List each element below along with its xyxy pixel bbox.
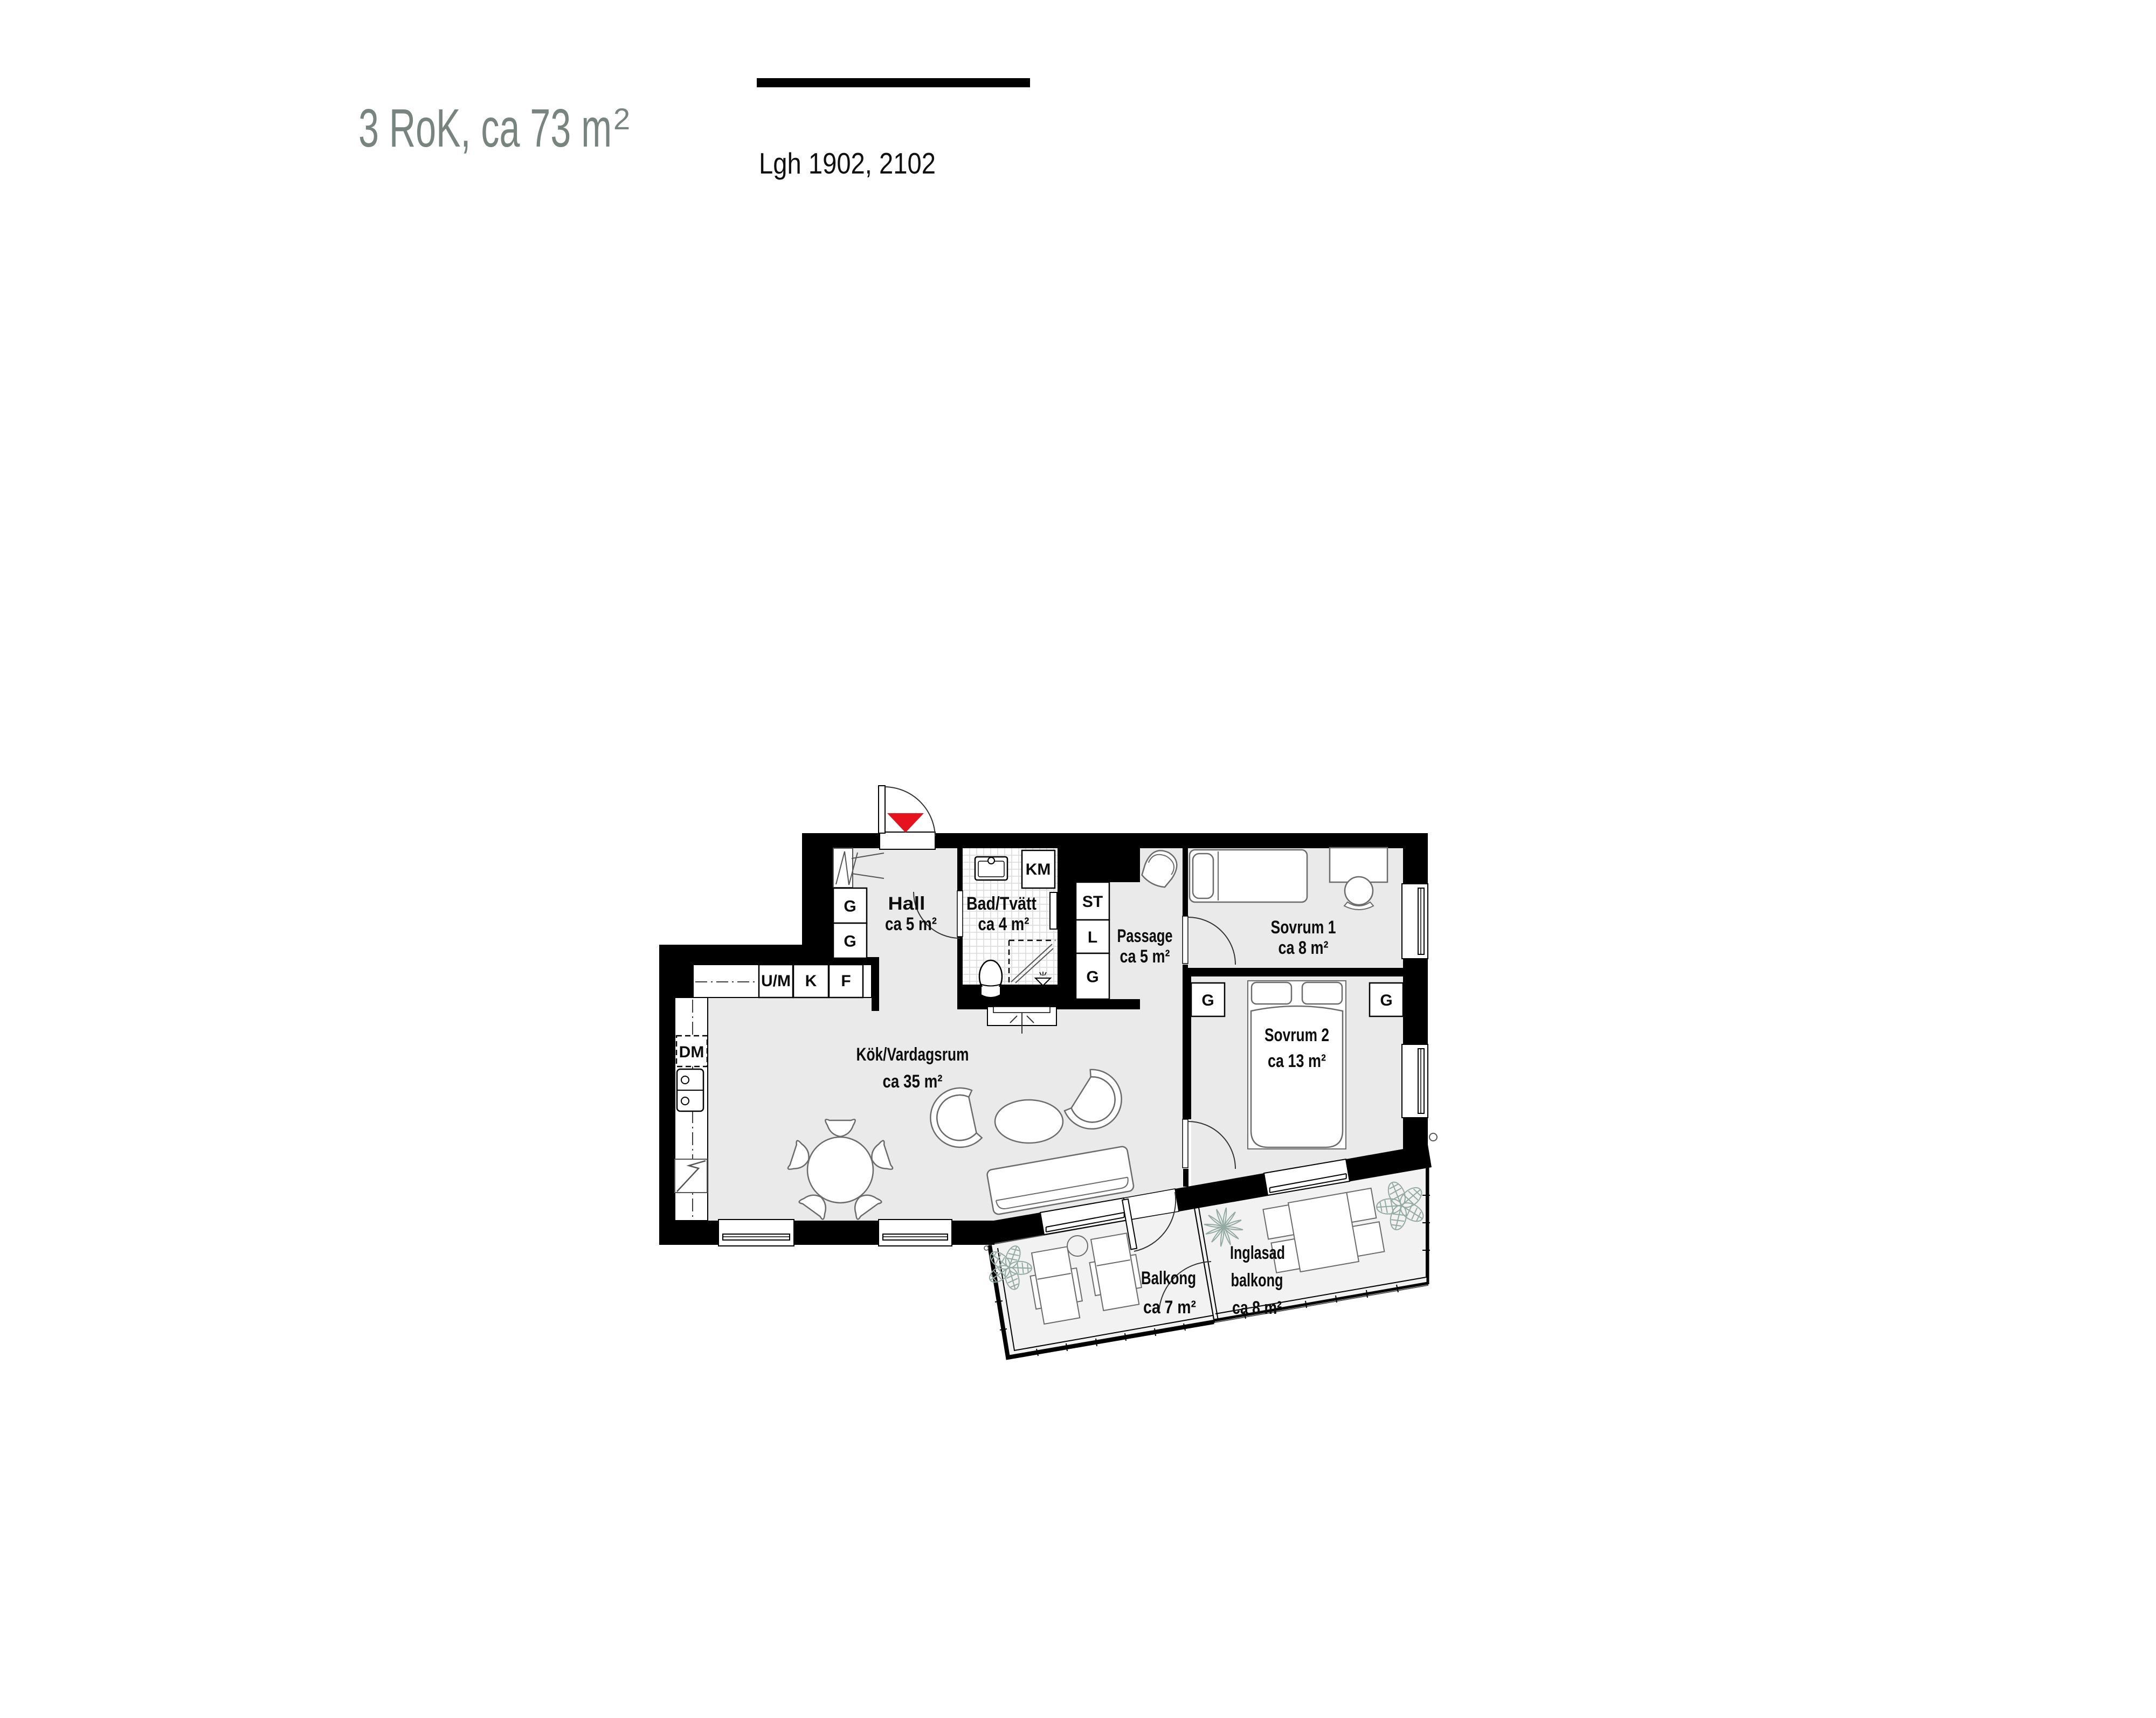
svg-text:ca 7 m²: ca 7 m² [1143, 1297, 1196, 1318]
svg-text:ca 8 m²: ca 8 m² [1279, 938, 1329, 958]
svg-text:G: G [844, 932, 856, 950]
svg-text:K: K [805, 972, 817, 990]
svg-text:Lgh 1902, 2102: Lgh 1902, 2102 [759, 147, 936, 180]
svg-text:Balkong: Balkong [1141, 1268, 1196, 1288]
svg-text:Sovrum 2: Sovrum 2 [1264, 1025, 1329, 1045]
svg-text:U/M: U/M [761, 972, 791, 990]
svg-text:Sovrum 1: Sovrum 1 [1271, 917, 1336, 938]
svg-text:ST: ST [1082, 893, 1103, 911]
svg-text:Hall: Hall [888, 893, 925, 914]
svg-text:Bad/Tvätt: Bad/Tvätt [966, 893, 1036, 914]
svg-text:ca 5 m²: ca 5 m² [1120, 946, 1170, 967]
svg-text:F: F [841, 972, 851, 990]
svg-text:Passage: Passage [1117, 926, 1173, 946]
svg-text:G: G [1086, 968, 1098, 986]
svg-text:G: G [1201, 992, 1214, 1009]
svg-text:ca 4 m²: ca 4 m² [978, 914, 1029, 934]
svg-text:Kök/Vardagsrum: Kök/Vardagsrum [856, 1044, 969, 1065]
svg-text:balkong: balkong [1231, 1270, 1283, 1291]
svg-text:Inglasad: Inglasad [1230, 1243, 1285, 1263]
svg-text:DM: DM [679, 1043, 704, 1061]
svg-text:G: G [844, 897, 856, 915]
svg-text:ca 35 m²: ca 35 m² [883, 1071, 943, 1092]
svg-text:3 RoK, ca 73 m: 3 RoK, ca 73 m [358, 98, 612, 158]
svg-text:ca 13 m²: ca 13 m² [1268, 1051, 1326, 1071]
svg-text:KM: KM [1026, 861, 1051, 878]
svg-text:ca 8 m²: ca 8 m² [1232, 1298, 1282, 1318]
svg-text:L: L [1088, 929, 1097, 946]
svg-text:ca 5 m²: ca 5 m² [885, 914, 937, 934]
svg-text:G: G [1380, 992, 1392, 1009]
svg-text:2: 2 [613, 102, 630, 136]
